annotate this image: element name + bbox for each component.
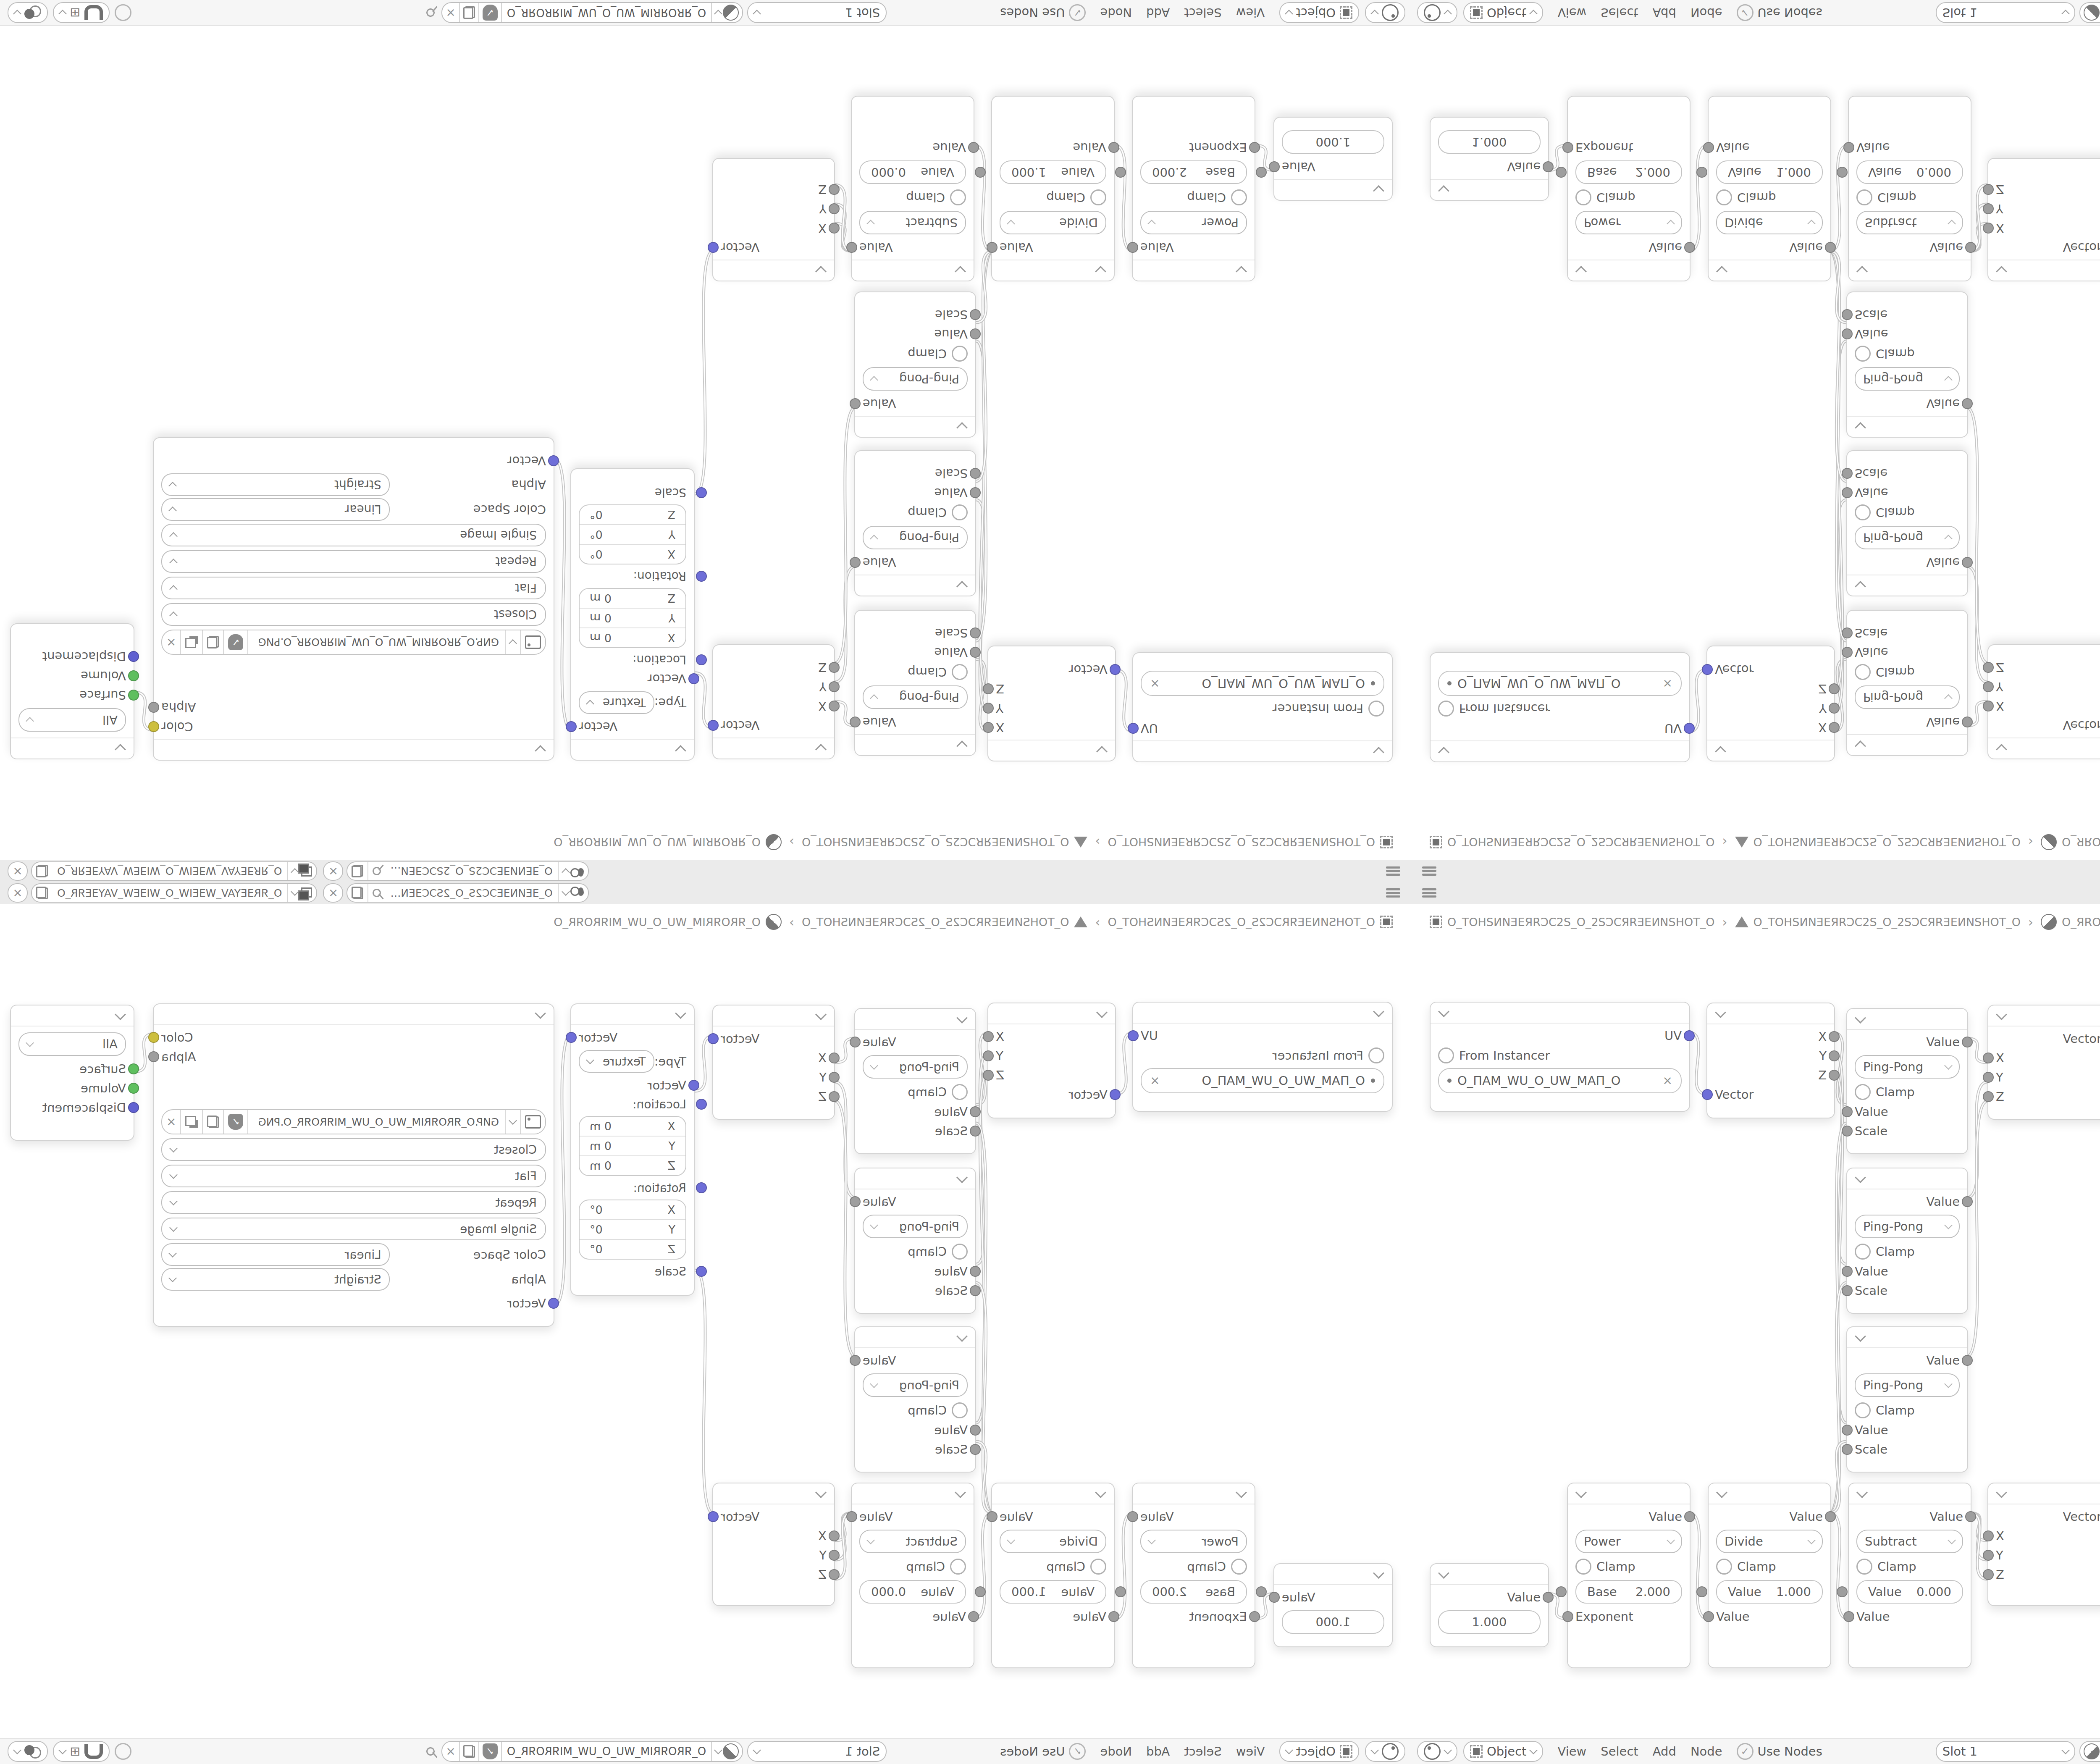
pin-scene-button[interactable]	[367, 884, 385, 902]
exponent-input-socket[interactable]	[1249, 142, 1260, 153]
node-collapse-button[interactable]	[988, 740, 1115, 761]
scale-input-socket[interactable]	[970, 1126, 981, 1137]
scale-input-socket[interactable]	[970, 468, 981, 479]
node-collapse-button[interactable]	[11, 738, 134, 759]
node-collapse-button[interactable]	[992, 260, 1114, 281]
combine-xyz-node-top[interactable]: Vector X Y Z	[712, 644, 835, 759]
math-node-ping-pong-2[interactable]: Value Ping-Pong Clamp Value Scale	[854, 1168, 976, 1314]
node-collapse-button[interactable]	[1847, 575, 1967, 596]
operation-dropdown[interactable]: Subtract	[1856, 211, 1963, 234]
rotation-z-field[interactable]: Z0°	[580, 1239, 685, 1259]
y-input-socket[interactable]	[829, 1550, 840, 1561]
menu-view[interactable]: View	[1236, 5, 1265, 20]
rotation-y-field[interactable]: Y0°	[580, 1219, 685, 1239]
vector-input-socket[interactable]	[1702, 664, 1713, 675]
uv-output-socket[interactable]	[1128, 723, 1139, 734]
operation-dropdown[interactable]: Ping-Pong	[1855, 685, 1960, 709]
x-input-socket[interactable]	[829, 223, 840, 234]
clamp-checkbox[interactable]	[1231, 189, 1247, 205]
projection-dropdown[interactable]: Flat	[161, 1165, 546, 1187]
interpolation-dropdown[interactable]: Closest	[161, 603, 546, 626]
rotation-x-field[interactable]: X0°	[580, 545, 685, 564]
vector-input-socket[interactable]	[1702, 1089, 1713, 1100]
value2-input-socket[interactable]	[1108, 1611, 1119, 1622]
clamp-checkbox[interactable]	[1856, 189, 1872, 205]
value-input-socket[interactable]	[1115, 167, 1126, 178]
node-collapse-button[interactable]	[1431, 179, 1548, 200]
collapsed-menus-icon[interactable]	[1422, 866, 1436, 876]
math-node-ping-pong-1[interactable]: Value Ping-Pong Clamp Value Scale	[854, 610, 976, 756]
new-material-button[interactable]	[459, 3, 478, 22]
node-collapse-button[interactable]	[1707, 1003, 1834, 1024]
x-input-socket[interactable]	[829, 1530, 840, 1541]
clamp-checkbox[interactable]	[1856, 1559, 1872, 1575]
source-dropdown[interactable]: Single Image	[161, 1218, 546, 1240]
separate-xyz-node[interactable]: X Y Z Vector	[987, 1003, 1116, 1118]
clamp-checkbox[interactable]	[1090, 189, 1106, 205]
view-layer-browse-button[interactable]	[287, 862, 316, 880]
value-output-socket[interactable]	[1965, 242, 1976, 253]
node-collapse-button[interactable]	[855, 416, 975, 437]
value-output-socket[interactable]	[1543, 1592, 1554, 1603]
menu-add[interactable]: Add	[1146, 1744, 1170, 1759]
color-space-dropdown[interactable]: Linear	[161, 498, 390, 521]
z-output-socket[interactable]	[1829, 683, 1840, 694]
value-input-socket[interactable]	[970, 1425, 981, 1436]
node-collapse-button[interactable]	[1847, 1168, 1967, 1189]
value2-input-socket[interactable]	[1108, 142, 1119, 153]
menu-add[interactable]: Add	[1653, 1744, 1676, 1759]
operation-dropdown[interactable]: Ping-Pong	[863, 367, 968, 391]
value-output-socket[interactable]	[1962, 1196, 1973, 1207]
value2-input-socket[interactable]	[1703, 1611, 1714, 1622]
operation-dropdown[interactable]: Power	[1575, 211, 1682, 234]
menu-node[interactable]: Node	[1690, 5, 1722, 20]
from-instancer-checkbox[interactable]	[1368, 701, 1384, 717]
operation-dropdown[interactable]: Subtract	[859, 211, 966, 234]
math-node-subtract[interactable]: Value Subtract Clamp Value0.000 Value	[851, 96, 974, 281]
node-collapse-button[interactable]	[1568, 260, 1690, 281]
z-output-socket[interactable]	[1829, 1070, 1840, 1081]
operation-dropdown[interactable]: Ping-Pong	[1855, 1373, 1960, 1397]
node-editor-canvas[interactable]: O_TOHSͶNƎEЯRƆC2S_O_2SƆCЯRƎEͶNSHOT_O › O_…	[0, 904, 1411, 1739]
value-input-socket[interactable]	[1842, 1266, 1853, 1277]
value-output-socket[interactable]	[846, 1511, 857, 1522]
separate-xyz-node[interactable]: X Y Z Vector	[987, 646, 1116, 761]
node-collapse-button[interactable]	[154, 1004, 554, 1025]
operation-dropdown[interactable]: Power	[1575, 1530, 1682, 1553]
base-input-socket[interactable]	[1256, 167, 1267, 178]
vector-output-socket[interactable]	[566, 1032, 577, 1043]
y-output-socket[interactable]	[1829, 1050, 1840, 1061]
separate-xyz-node[interactable]: X Y Z Vector	[1706, 1003, 1835, 1118]
value2-input-socket[interactable]	[1843, 142, 1854, 153]
scale-input-socket[interactable]	[1842, 1126, 1853, 1137]
unlink-scene-button[interactable]: ×	[323, 883, 343, 903]
vector-output-socket[interactable]	[708, 1511, 719, 1522]
node-collapse-button[interactable]	[855, 575, 975, 596]
vector-output-socket[interactable]	[708, 242, 719, 253]
remove-view-layer-button[interactable]: ×	[8, 883, 28, 903]
z-input-socket[interactable]	[1983, 184, 1994, 195]
math-node-subtract[interactable]: Value Subtract Clamp Value0.000 Value	[851, 1483, 974, 1668]
math-node-ping-pong-2[interactable]: Value Ping-Pong Clamp Value Scale	[1846, 450, 1968, 596]
unlink-material-button[interactable]: ×	[442, 1742, 459, 1761]
node-collapse-button[interactable]	[154, 739, 554, 760]
value-node[interactable]: Value 1.000	[1273, 1563, 1393, 1647]
value-input-socket[interactable]	[970, 328, 981, 339]
editor-type-button[interactable]	[1365, 1741, 1405, 1762]
node-collapse-button[interactable]	[1709, 1483, 1830, 1504]
surface-input-socket[interactable]	[128, 690, 139, 701]
surface-input-socket[interactable]	[128, 1063, 139, 1074]
node-collapse-button[interactable]	[852, 260, 974, 281]
uv-map-node[interactable]: UV From Instancer O_ПAM_WU_O_UW_MAП_O ×	[1430, 1002, 1690, 1112]
pin-scene-button[interactable]	[367, 862, 385, 880]
new-scene-button[interactable]	[347, 884, 367, 902]
fake-user-button[interactable]: ✓	[478, 3, 501, 22]
value-output-socket[interactable]	[1825, 242, 1836, 253]
value-input-socket[interactable]	[1837, 1586, 1848, 1597]
math-node-power[interactable]: Value Power Clamp Base2.000 Exponent	[1132, 96, 1255, 281]
unlink-image-button[interactable]: ×	[162, 630, 180, 654]
clamp-checkbox[interactable]	[1575, 1559, 1591, 1575]
snap-target-icon[interactable]: ⊞	[70, 1745, 80, 1758]
collapsed-menus-icon[interactable]	[1386, 866, 1400, 876]
x-output-socket[interactable]	[1829, 722, 1840, 733]
editor-type-button[interactable]	[1365, 2, 1405, 23]
scale-input-socket[interactable]	[1842, 309, 1853, 320]
value-field[interactable]: 1.000	[1282, 130, 1384, 154]
combine-xyz-node-top[interactable]: Vector X Y Z	[1987, 644, 2100, 759]
value-field[interactable]: Value1.000	[1000, 1580, 1106, 1604]
rotation-z-field[interactable]: Z0°	[580, 505, 685, 525]
node-collapse-button[interactable]	[1988, 260, 2100, 281]
clamp-checkbox[interactable]	[952, 1402, 968, 1418]
location-x-field[interactable]: X0 m	[580, 628, 685, 647]
backdrop-toggle[interactable]	[115, 1743, 131, 1760]
z-input-socket[interactable]	[829, 184, 840, 195]
scale-input-socket[interactable]	[970, 1285, 981, 1296]
node-collapse-button[interactable]	[1133, 1483, 1255, 1504]
value-output-socket[interactable]	[1684, 1511, 1695, 1522]
scene-browse-button[interactable]	[558, 862, 588, 880]
pin-material-button[interactable]	[425, 1746, 436, 1757]
node-collapse-button[interactable]	[1849, 1483, 1971, 1504]
z-input-socket[interactable]	[1983, 662, 1994, 673]
value-input-socket[interactable]	[975, 1586, 986, 1597]
fake-user-button[interactable]: ✓	[223, 1110, 247, 1134]
math-node-ping-pong-1[interactable]: Value Ping-Pong Clamp Value Scale	[1846, 610, 1968, 756]
value-field[interactable]: 1.000	[1438, 1610, 1541, 1634]
combine-xyz-node-bottom[interactable]: Vector X Y Z	[712, 1483, 835, 1606]
value-field[interactable]: Value1.000	[1716, 160, 1823, 184]
value-field[interactable]: 1.000	[1282, 1610, 1384, 1634]
value-output-socket[interactable]	[1962, 717, 1973, 727]
image-texture-node[interactable]: Color Alpha GИP.O_ЯROЯRIM_WU_O_UW_MIЯROЯ…	[153, 437, 554, 761]
node-collapse-button[interactable]	[1568, 1483, 1690, 1504]
math-node-divide[interactable]: Value Divide Clamp Value1.000 Value	[991, 96, 1115, 281]
math-node-power[interactable]: Value Power Clamp Base2.000 Exponent	[1567, 96, 1690, 281]
y-input-socket[interactable]	[1983, 1072, 1994, 1083]
clamp-checkbox[interactable]	[1855, 1084, 1871, 1100]
node-collapse-button[interactable]	[1133, 1003, 1392, 1024]
operation-dropdown[interactable]: Ping-Pong	[863, 1215, 968, 1238]
value-input-socket[interactable]	[1696, 1586, 1707, 1597]
z-input-socket[interactable]	[829, 1569, 840, 1580]
from-instancer-checkbox[interactable]	[1438, 701, 1454, 717]
value-input-socket[interactable]	[970, 1266, 981, 1277]
menu-add[interactable]: Add	[1653, 5, 1676, 20]
fake-user-button[interactable]: ✓	[478, 1742, 501, 1761]
scale-input-socket[interactable]	[1842, 468, 1853, 479]
base-field[interactable]: Base2.000	[1140, 1580, 1247, 1604]
node-collapse-button[interactable]	[1988, 738, 2100, 759]
clamp-checkbox[interactable]	[1855, 1244, 1871, 1260]
material-slot-dropdown[interactable]: Slot 1	[1936, 2, 2075, 23]
menu-select[interactable]: Select	[1601, 5, 1638, 20]
chevron-down-icon[interactable]	[13, 10, 21, 18]
scale-input-socket[interactable]	[970, 309, 981, 320]
z-input-socket[interactable]	[1983, 1569, 1994, 1580]
image-filename[interactable]: GИP.O_ЯROЯRIM_WU_O_UW_MIЯROЯR_O.PNG	[247, 630, 505, 654]
value-input-socket[interactable]	[1115, 1586, 1126, 1597]
node-collapse-button[interactable]	[571, 1004, 694, 1025]
value-output-socket[interactable]	[850, 557, 861, 568]
clamp-checkbox[interactable]	[1716, 1559, 1732, 1575]
menu-select[interactable]: Select	[1184, 5, 1221, 20]
pack-image-button[interactable]	[180, 630, 202, 654]
material-output-node[interactable]: All Surface Volume Displacement	[10, 623, 134, 759]
browse-image-button[interactable]	[520, 630, 545, 654]
operation-dropdown[interactable]: Ping-Pong	[1855, 1215, 1960, 1238]
value-output-socket[interactable]	[1962, 398, 1973, 409]
clamp-checkbox[interactable]	[952, 504, 968, 520]
value-input-socket[interactable]	[970, 647, 981, 658]
mapping-type-dropdown[interactable]: Texture	[579, 1050, 654, 1073]
value-output-socket[interactable]	[987, 1511, 997, 1522]
node-collapse-button[interactable]	[1133, 260, 1255, 281]
location-y-field[interactable]: Y0 m	[580, 1136, 685, 1155]
node-collapse-button[interactable]	[855, 1327, 975, 1348]
magnet-icon[interactable]	[84, 5, 103, 20]
value-output-socket[interactable]	[1962, 557, 1973, 568]
browse-image-button[interactable]	[520, 1110, 545, 1134]
y-output-socket[interactable]	[1829, 703, 1840, 714]
node-collapse-button[interactable]	[1274, 1564, 1392, 1585]
operation-dropdown[interactable]: Subtract	[1856, 1530, 1963, 1553]
node-collapse-button[interactable]	[1988, 1483, 2100, 1504]
vector-input-socket[interactable]	[688, 1080, 699, 1091]
collapsed-menus-icon[interactable]	[1386, 888, 1400, 898]
backdrop-toggle[interactable]	[115, 4, 131, 21]
menu-node[interactable]: Node	[1100, 1744, 1132, 1759]
color-space-dropdown[interactable]: Linear	[161, 1243, 390, 1266]
browse-material-button[interactable]	[711, 1742, 742, 1761]
base-field[interactable]: Base2.000	[1575, 1580, 1682, 1604]
extension-dropdown[interactable]: Repeat	[161, 550, 546, 573]
clear-uv-map-button[interactable]: ×	[1150, 1075, 1160, 1087]
mapping-node[interactable]: Vector Type: Texture Vector Location: X0…	[570, 1003, 695, 1296]
x-input-socket[interactable]	[1983, 1053, 1994, 1063]
from-instancer-checkbox[interactable]	[1368, 1047, 1384, 1063]
x-output-socket[interactable]	[1829, 1031, 1840, 1042]
operation-dropdown[interactable]: Divide	[1000, 211, 1106, 234]
from-instancer-checkbox[interactable]	[1438, 1047, 1454, 1063]
math-node-divide[interactable]: Value Divide Clamp Value1.000 Value	[1708, 96, 1831, 281]
value-output-socket[interactable]	[1127, 242, 1138, 253]
use-nodes-checkbox[interactable]: ✓ Use Nodes	[1737, 4, 1822, 21]
alpha-mode-dropdown[interactable]: Straight	[161, 473, 390, 496]
combine-xyz-node-bottom[interactable]: Vector X Y Z	[712, 158, 835, 281]
collapsed-menus-icon[interactable]	[1422, 888, 1436, 898]
menu-select[interactable]: Select	[1601, 1744, 1638, 1759]
node-collapse-button[interactable]	[713, 1005, 834, 1026]
value-input-socket[interactable]	[1842, 1106, 1853, 1117]
extension-dropdown[interactable]: Repeat	[161, 1191, 546, 1214]
displacement-input-socket[interactable]	[128, 1102, 139, 1113]
value-input-socket[interactable]	[970, 1106, 981, 1117]
node-collapse-button[interactable]	[992, 1483, 1114, 1504]
value-node[interactable]: Value 1.000	[1430, 1563, 1549, 1647]
node-collapse-button[interactable]	[988, 1003, 1115, 1024]
rotation-x-field[interactable]: X0°	[580, 1200, 685, 1219]
snap-target-icon[interactable]: ⊞	[70, 6, 80, 19]
new-view-layer-button[interactable]	[32, 862, 52, 880]
combine-xyz-node-top[interactable]: Vector X Y Z	[1987, 1005, 2100, 1120]
node-collapse-button[interactable]	[1707, 740, 1834, 761]
math-node-power[interactable]: Value Power Clamp Base2.000 Exponent	[1567, 1483, 1690, 1668]
scale-input-socket[interactable]	[1842, 627, 1853, 638]
value-output-socket[interactable]	[1825, 1511, 1836, 1522]
value-output-socket[interactable]	[1127, 1511, 1138, 1522]
browse-material-button[interactable]	[2080, 3, 2100, 22]
base-input-socket[interactable]	[1556, 1586, 1567, 1597]
vector-input-socket[interactable]	[688, 673, 699, 684]
value-output-socket[interactable]	[850, 717, 861, 727]
node-collapse-button[interactable]	[1274, 179, 1392, 200]
math-node-ping-pong-3[interactable]: Value Ping-Pong Clamp Value Scale	[1846, 1326, 1968, 1473]
x-input-socket[interactable]	[829, 701, 840, 711]
new-scene-button[interactable]	[347, 862, 367, 880]
value2-input-socket[interactable]	[968, 1611, 979, 1622]
material-name[interactable]: O_ЯROЯRIM_WU_O_UW_MIЯROЯR_O	[501, 1742, 711, 1761]
x-input-socket[interactable]	[1983, 223, 1994, 234]
browse-material-button[interactable]	[711, 3, 742, 22]
operation-dropdown[interactable]: Ping-Pong	[1855, 1055, 1960, 1079]
value-field[interactable]: Value1.000	[1000, 160, 1106, 184]
z-output-socket[interactable]	[983, 683, 994, 694]
scene-name[interactable]: O_ƎEͶNƎEƆC2S_O_2SƆCƎEN…	[385, 884, 557, 902]
image-filename[interactable]: GИP.O_ЯROЯRIM_WU_O_UW_MIЯROЯR_O.PNG	[247, 1110, 505, 1134]
new-image-button[interactable]	[202, 630, 223, 654]
volume-input-socket[interactable]	[128, 1083, 139, 1094]
editor-type-button[interactable]	[1417, 2, 1457, 23]
use-nodes-checkbox[interactable]: ✓ Use Nodes	[1000, 1743, 1086, 1760]
x-input-socket[interactable]	[1983, 701, 1994, 711]
scale-input-socket[interactable]	[1842, 1444, 1853, 1455]
operation-dropdown[interactable]: Ping-Pong	[863, 526, 968, 549]
use-nodes-checkbox[interactable]: ✓ Use Nodes	[1737, 1743, 1822, 1760]
clamp-checkbox[interactable]	[1855, 346, 1871, 362]
scale-input-socket[interactable]	[1842, 1285, 1853, 1296]
node-collapse-button[interactable]	[1709, 260, 1830, 281]
uv-map-node[interactable]: UV From Instancer O_ПAM_WU_O_UW_MAП_O ×	[1132, 652, 1393, 762]
y-input-socket[interactable]	[829, 1072, 840, 1083]
alpha-mode-dropdown[interactable]: Straight	[161, 1268, 390, 1291]
vector-input-socket[interactable]	[548, 1298, 559, 1309]
scale-input-socket[interactable]	[696, 1266, 707, 1277]
unlink-material-button[interactable]: ×	[442, 3, 459, 22]
base-input-socket[interactable]	[1256, 1586, 1267, 1597]
rotation-y-field[interactable]: Y0°	[580, 525, 685, 545]
node-collapse-button[interactable]	[713, 260, 834, 281]
clamp-checkbox[interactable]	[1855, 1402, 1871, 1418]
scale-input-socket[interactable]	[970, 627, 981, 638]
value-output-socket[interactable]	[850, 1037, 861, 1047]
menu-view[interactable]: View	[1557, 5, 1586, 20]
value-output-socket[interactable]	[850, 398, 861, 409]
chevron-down-icon[interactable]	[58, 10, 67, 18]
unlink-image-button[interactable]: ×	[162, 1110, 180, 1134]
math-node-subtract[interactable]: Value Subtract Clamp Value0.000 Value	[1848, 1483, 1971, 1668]
base-input-socket[interactable]	[1556, 167, 1567, 178]
math-node-ping-pong-3[interactable]: Value Ping-Pong Clamp Value Scale	[1846, 291, 1968, 438]
vector-input-socket[interactable]	[1110, 1089, 1121, 1100]
x-output-socket[interactable]	[983, 722, 994, 733]
operation-dropdown[interactable]: Power	[1140, 1530, 1247, 1553]
math-node-power[interactable]: Value Power Clamp Base2.000 Exponent	[1132, 1483, 1255, 1668]
operation-dropdown[interactable]: Divide	[1716, 1530, 1823, 1553]
shader-type-dropdown[interactable]: Object	[1279, 1741, 1359, 1762]
node-collapse-button[interactable]	[1847, 1327, 1967, 1348]
pin-material-button[interactable]	[425, 7, 436, 18]
exponent-input-socket[interactable]	[1249, 1611, 1260, 1622]
fake-user-button[interactable]: ✓	[223, 630, 247, 654]
editor-type-button[interactable]	[1417, 1741, 1457, 1762]
new-view-layer-button[interactable]	[32, 884, 52, 902]
use-nodes-checkbox[interactable]: ✓ Use Nodes	[1000, 4, 1086, 21]
chevron-down-icon[interactable]	[58, 1746, 67, 1754]
clamp-checkbox[interactable]	[1575, 189, 1591, 205]
node-collapse-button[interactable]	[1431, 1564, 1548, 1585]
z-input-socket[interactable]	[829, 1091, 840, 1102]
mapping-type-dropdown[interactable]: Texture	[579, 691, 654, 714]
y-output-socket[interactable]	[983, 1050, 994, 1061]
mapping-node[interactable]: Vector Type: Texture Vector Location: X0…	[570, 468, 695, 761]
vector-input-socket[interactable]	[1110, 664, 1121, 675]
node-collapse-button[interactable]	[1988, 1005, 2100, 1026]
menu-node[interactable]: Node	[1100, 5, 1132, 20]
value-input-socket[interactable]	[1842, 647, 1853, 658]
math-node-ping-pong-2[interactable]: Value Ping-Pong Clamp Value Scale	[1846, 1168, 1968, 1314]
clear-uv-map-button[interactable]: ×	[1663, 677, 1672, 689]
image-texture-node[interactable]: Color Alpha GИP.O_ЯROЯRIM_WU_O_UW_MIЯROЯ…	[153, 1003, 554, 1327]
value2-input-socket[interactable]	[968, 142, 979, 153]
value-input-socket[interactable]	[1842, 1425, 1853, 1436]
uv-map-node[interactable]: UV From Instancer O_ПAM_WU_O_UW_MAП_O ×	[1430, 652, 1690, 762]
scale-input-socket[interactable]	[696, 487, 707, 498]
math-node-ping-pong-2[interactable]: Value Ping-Pong Clamp Value Scale	[854, 450, 976, 596]
overlays-icon[interactable]	[24, 1745, 41, 1758]
location-x-field[interactable]: X0 m	[580, 1117, 685, 1136]
operation-dropdown[interactable]: Ping-Pong	[863, 685, 968, 709]
value-output-socket[interactable]	[1962, 1037, 1973, 1047]
clamp-checkbox[interactable]	[952, 346, 968, 362]
value-field[interactable]: Value0.000	[1856, 1580, 1963, 1604]
output-target-dropdown[interactable]: All	[18, 708, 126, 732]
y-input-socket[interactable]	[1983, 1550, 1994, 1561]
